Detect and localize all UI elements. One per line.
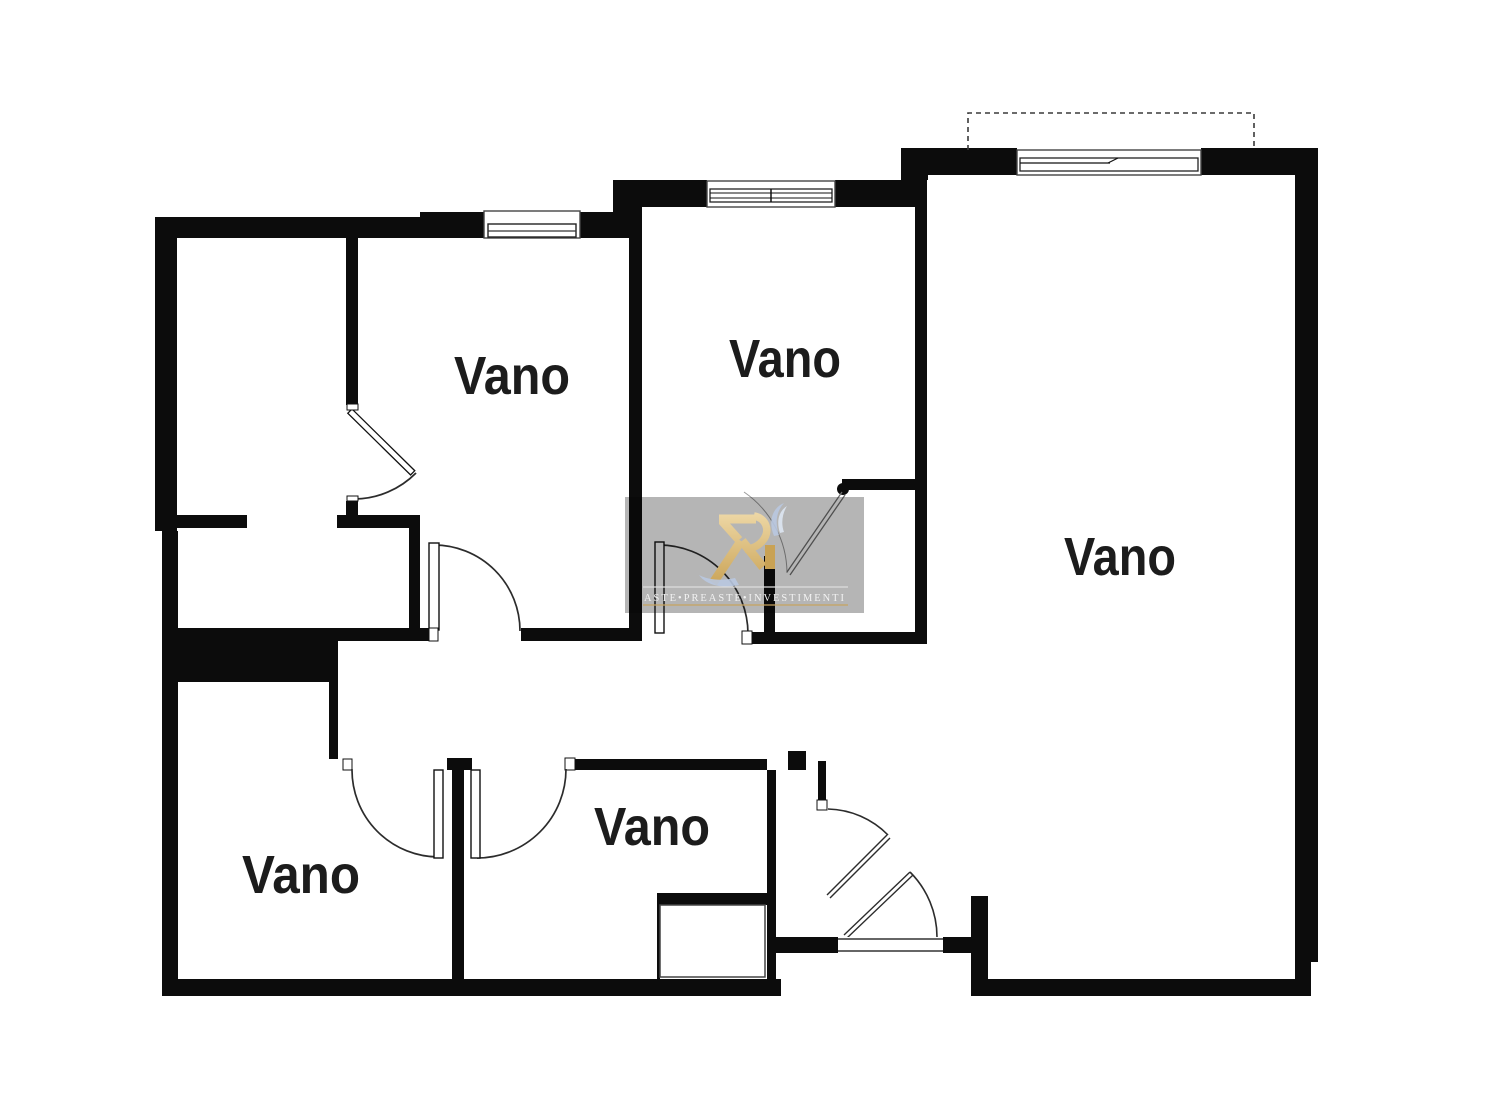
svg-text:Vano: Vano	[594, 797, 710, 857]
svg-text:Vano: Vano	[454, 346, 570, 406]
svg-text:ASTE•PREASTE•INVESTIMENTI: ASTE•PREASTE•INVESTIMENTI	[644, 593, 846, 604]
svg-text:Vano: Vano	[242, 845, 360, 905]
svg-text:Vano: Vano	[1064, 527, 1176, 587]
svg-text:Vano: Vano	[729, 329, 841, 389]
